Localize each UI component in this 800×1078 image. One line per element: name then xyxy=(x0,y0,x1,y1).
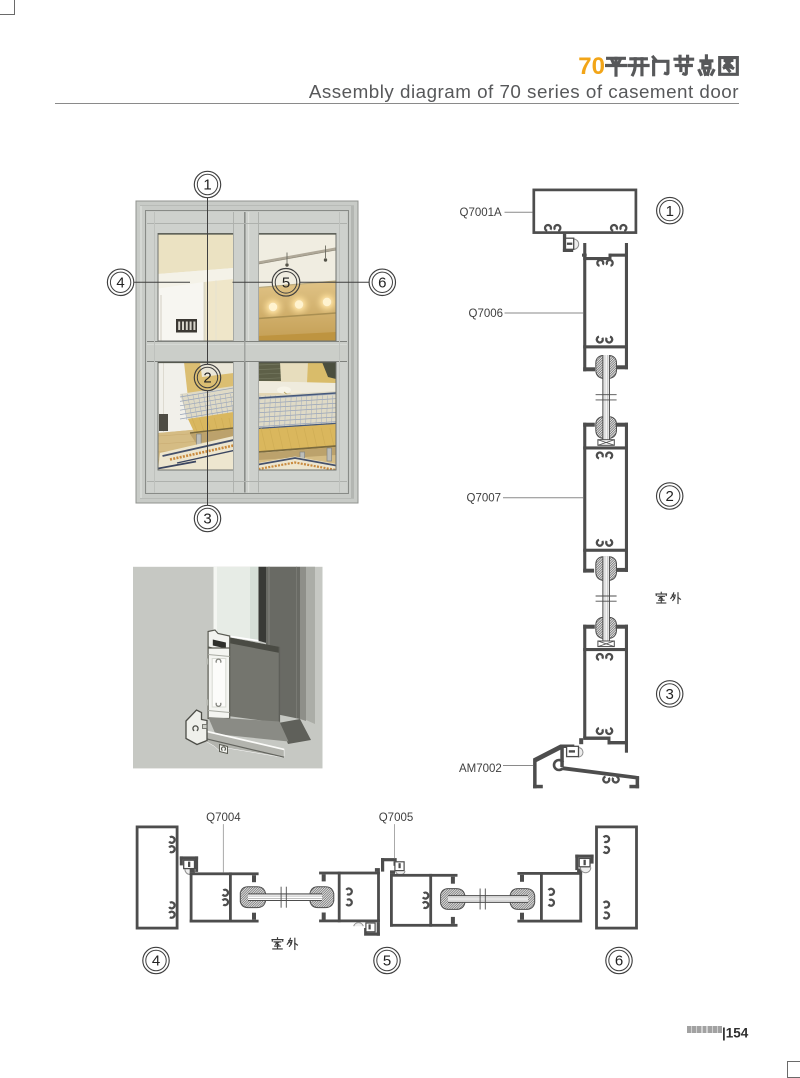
svg-text:6: 6 xyxy=(378,275,386,292)
svg-text:5: 5 xyxy=(282,275,290,292)
svg-text:4: 4 xyxy=(116,275,124,292)
svg-text:3: 3 xyxy=(203,511,211,528)
svg-text:2: 2 xyxy=(203,370,211,387)
svg-text:1: 1 xyxy=(203,177,211,194)
